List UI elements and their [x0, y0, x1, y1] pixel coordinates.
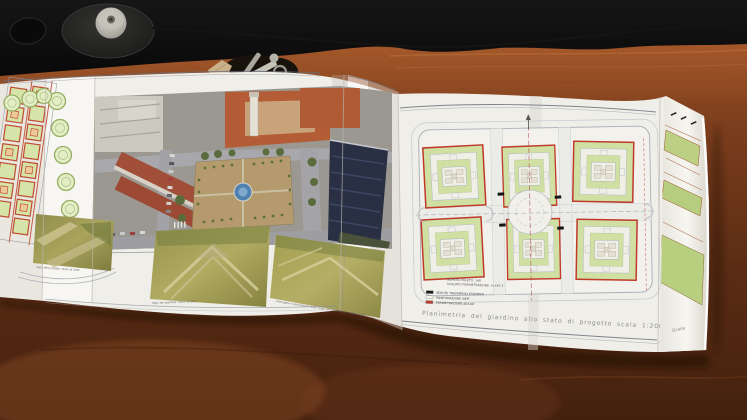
garden-block-tr: [573, 141, 634, 202]
legend-swatch-white: [426, 296, 433, 299]
curled-sheet: Strada: [658, 97, 709, 352]
photograph-of-desk-with-plans: Vista delle aiuole: stato di fatto Siepi…: [0, 0, 747, 420]
site-photo-2: [150, 226, 270, 307]
garden-block-bl: [421, 217, 484, 280]
aerial-dark-building: [328, 140, 390, 250]
scene-canvas: Vista delle aiuole: stato di fatto Siepi…: [0, 0, 747, 420]
site-photo-1: [33, 214, 114, 271]
garden-block-br: [576, 219, 637, 280]
legend-swatch-red: [426, 301, 433, 304]
aerial-garden: [192, 156, 294, 230]
garden-block-tl: [423, 145, 486, 208]
legend-swatch-black: [426, 291, 433, 294]
lamp-base-disc: [62, 4, 154, 58]
clock-tower: [250, 94, 258, 136]
